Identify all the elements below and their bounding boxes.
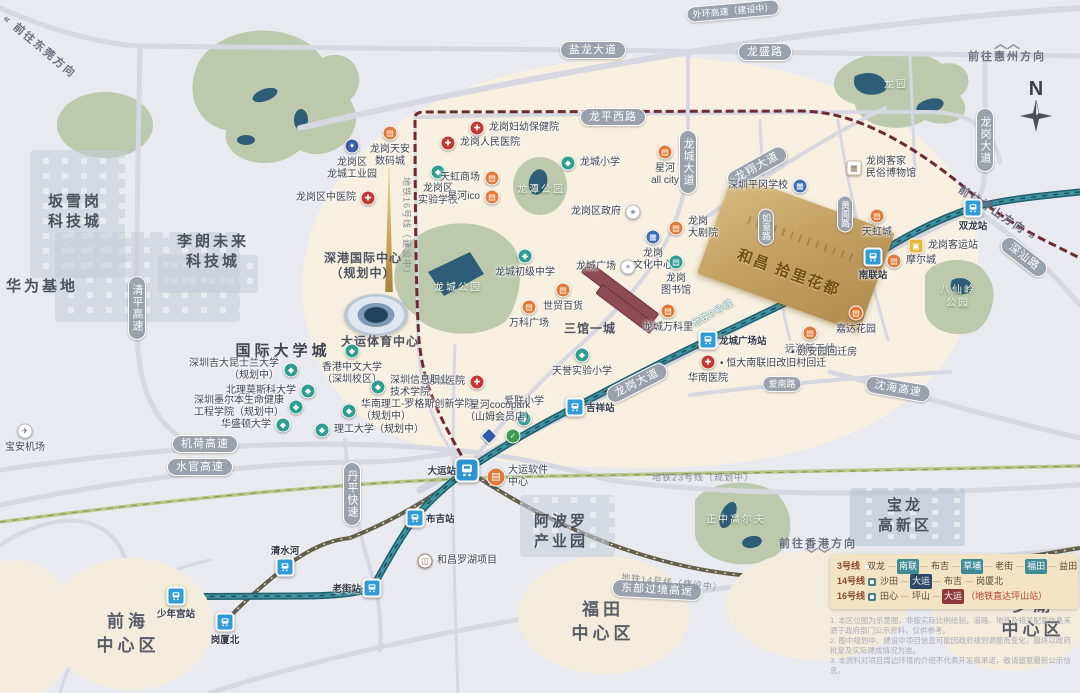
poi-label-line: 龙城广场 (576, 261, 616, 273)
gov-icon: ★ (626, 205, 641, 220)
metro-logo-icon (868, 593, 876, 601)
poi-label-line: 大剧院 (688, 228, 718, 240)
hospital-icon: ✚ (701, 355, 716, 370)
poi-label: 深圳墨尔本生命健康工程学院（规划中） (194, 395, 284, 419)
mall-icon: ▤ (658, 145, 673, 160)
bus-icon: ▣ (909, 239, 924, 254)
legend-row: 3号线双龙—南联—布吉—草埔—老街—福田—益田 (837, 559, 1071, 574)
park-label: 龙潭公园 (517, 184, 565, 197)
poi-label: 龙岗图书馆 (661, 273, 691, 297)
poi-label-line: 图书馆 (661, 285, 691, 297)
area-label-line: 前海 (97, 610, 160, 634)
legend-row: 16号线田心—坪山—大运（地铁直达坪山站） (837, 589, 1071, 604)
poi-label-line: 理工大学（规划中） (334, 424, 424, 436)
road-label: 清平高速 (128, 276, 146, 340)
poi-label: 龙城广场 (576, 261, 616, 273)
metro-station-label: 南联站 (859, 267, 888, 281)
legend-station: 布吉 (942, 574, 964, 589)
mall-lg-icon: ▤ (487, 468, 506, 487)
area-label-line: 中心区 (97, 634, 160, 658)
poi-label-line: 万科广场 (509, 318, 549, 330)
area-label: 三馆一城 (564, 322, 616, 337)
school-icon: ◆ (575, 348, 590, 363)
area-label: 前海中心区 (97, 610, 160, 658)
poi-label-line: 文化中心 (633, 260, 673, 272)
poi-label-line: 星河 (651, 163, 679, 175)
poi-label-line: 华南医院 (688, 373, 728, 385)
poi-label: 和昌罗湖项目 (437, 555, 497, 567)
poi-label-line: 龙城初级中学 (495, 267, 555, 279)
legend-station: 沙田 (878, 574, 900, 589)
area-label-line: 李朗未来 (177, 232, 249, 252)
poi-label-line: 龙岗 (688, 216, 718, 228)
legend-line-name: 16号线 (837, 589, 865, 604)
poi-label-line: all city (651, 175, 679, 187)
mall-icon: ▤ (485, 190, 500, 205)
metro-station-icon (276, 558, 295, 577)
poi-label-line: 工程学院（规划中） (194, 407, 284, 419)
metro-station-label: 岗厦北 (211, 632, 240, 646)
metro-station-label: 龙城广场站 (719, 333, 767, 347)
metro-station-label: 双龙站 (959, 218, 988, 232)
poi-label: 龙岗文化中心 (633, 248, 673, 272)
park-label-line: 龙潭公园 (517, 184, 565, 197)
hospital-icon: ✚ (361, 191, 376, 206)
road-label: 机荷高速 (172, 435, 238, 453)
direction-text: 前往惠州方向 (968, 51, 1046, 63)
poi-label-line: （规划中） (189, 370, 279, 382)
poi-label-line: 星河ico (447, 191, 480, 203)
poi-label-line: （规划中） (361, 411, 474, 423)
area-label-line: 阿波罗 (534, 512, 588, 532)
mall-icon: ▤ (803, 326, 818, 341)
area-label: 宝龙高新区 (878, 496, 932, 536)
poi-label: 天虹城 (862, 227, 892, 239)
area-label: 阿波罗产业园 (534, 512, 588, 552)
road-label: 盐龙大道 (560, 41, 626, 59)
road-label: 丹平快速 (343, 462, 361, 526)
poi-label: 大运软件中心 (508, 465, 548, 489)
poi-label: 万科广场 (509, 318, 549, 330)
road-label: 如意路 (758, 209, 774, 246)
park-label: 八仙岭公园 (940, 284, 976, 310)
poi-label: 天虹商场 (440, 172, 480, 184)
legend-station: 田心 (878, 589, 900, 604)
park-label-line: 龙园 (884, 79, 908, 92)
area-label: 坂雪岗科技城 (48, 192, 102, 232)
mall-icon: ▤ (887, 254, 902, 269)
mall-icon: ▤ (383, 126, 398, 141)
library-icon: ▤ (669, 255, 684, 270)
metro-station-icon (864, 248, 883, 267)
plaza-icon: ✦ (621, 260, 636, 275)
poi-label: 世贸百货 (543, 301, 583, 313)
mall-icon: ▤ (849, 306, 864, 321)
road-label: 爱南路 (762, 376, 801, 392)
road-label: 水官高速 (167, 458, 233, 476)
poi-label-line: 龙城小学 (580, 157, 620, 169)
poi-label-line: 华南理工-罗格斯创新学院 (361, 399, 474, 411)
poi-label: 龙岗妇幼保健院 (489, 122, 559, 134)
poi-label-line: 数码城 (370, 156, 410, 168)
compass-star-icon (1020, 100, 1052, 132)
metro-station-label: 布吉站 (426, 511, 455, 525)
metro-station-label: 清水河 (271, 543, 300, 557)
school-icon: ◆ (315, 423, 330, 438)
legend-station: 布吉 (929, 559, 951, 574)
map-text-line: • 恒大南联旧改旧村回迁 (720, 358, 826, 370)
poi-label-line: 大运软件 (508, 465, 548, 477)
poi-label: 龙城小学 (580, 157, 620, 169)
legend-separator: — (952, 559, 960, 574)
poi-label: 龙岗人民医院 (460, 137, 520, 149)
poi-label-line: 龙岗妇幼保健院 (489, 122, 559, 134)
poi-label-line: 龙岗客运站 (928, 240, 978, 252)
legend-separator: — (920, 559, 928, 574)
poi-label: 嘉达花园 (836, 324, 876, 336)
poi-label-line: 天誉实验小学 (552, 366, 612, 378)
metro-legend: 3号线双龙—南联—布吉—草埔—老街—福田—益田14号线沙田—大运—布吉—岗厦北1… (830, 554, 1078, 609)
poi-label: 龙城万科里 (643, 322, 693, 334)
poi-label-line: 龙岗区政府 (571, 206, 621, 218)
poi-label-line: 天虹商场 (440, 172, 480, 184)
mall-icon: ▤ (485, 171, 500, 186)
school-icon: ◆ (561, 156, 576, 171)
poi-label: 星河all city (651, 163, 679, 187)
metro-station-icon (406, 509, 425, 528)
area-label-line: （规划中） (324, 266, 402, 281)
poi-label-line: 民俗博物馆 (866, 168, 916, 180)
park-label: 正中高尔夫 (706, 514, 766, 527)
poi-label-line: 和昌罗湖项目 (437, 555, 497, 567)
metro-station-label: 吉祥站 (586, 400, 615, 414)
map-text-line: 星河cocopark (465, 400, 535, 412)
area-label-line: 产业园 (534, 532, 588, 552)
area-label-line: 高新区 (878, 516, 932, 536)
legend-station: 草埔 (961, 559, 983, 574)
legend-separator: — (965, 574, 973, 589)
road-label: 龙平西路 (580, 108, 646, 126)
school-icon: ◆ (276, 418, 291, 433)
area-label: 福田中心区 (572, 598, 635, 646)
disclaimer-text: 1. 本区位图为示意图，非按实际比例绘制，道路、地铁及相关配套信息来源于政府部门… (830, 616, 1078, 676)
mall-icon: ▤ (522, 300, 537, 315)
mall-icon: ▤ (870, 209, 885, 224)
legend-separator: — (984, 559, 992, 574)
poi-label: 天誉实验小学 (552, 366, 612, 378)
road-label: 黄阁路 (837, 196, 853, 233)
school-icon: ◆ (371, 380, 386, 395)
park-label-line: 八仙岭 (940, 284, 976, 297)
legend-line-name: 3号线 (837, 559, 860, 574)
metro-logo-icon (868, 578, 876, 586)
park-label: 龙园 (884, 79, 908, 92)
metro-station-label: 大运站 (427, 463, 456, 477)
metro-station-label: 老街站 (332, 581, 361, 595)
map-text-label: • 恒大南联旧改旧村回迁 (720, 358, 826, 370)
poi-label: 龙岗客运站 (928, 240, 978, 252)
poi-label-line: 龙城工业园 (327, 169, 377, 181)
poi-label-line: 世贸百货 (543, 301, 583, 313)
poi-label-line: 中心 (508, 477, 548, 489)
legend-station: 大运 (942, 589, 964, 604)
map-text-label: 星河cocopark（山姆会员店） (465, 400, 535, 424)
park-label-line: 龙城公园 (434, 282, 482, 295)
park-label: 龙城公园 (434, 282, 482, 295)
culture-icon: ▦ (793, 179, 808, 194)
park-label-line: 公园 (940, 297, 976, 310)
area-label-line: 宝龙 (878, 496, 932, 516)
area-label-line: 三馆一城 (564, 322, 616, 337)
poi-label-line: 龙岗天安 (370, 144, 410, 156)
location-map: 和昌 拾里花都 N 盐龙大道龙盛路外环高速（建设中）龙平西路龙城大道龙翔大道龙岗… (0, 0, 1080, 693)
legend-line-name: 14号线 (837, 574, 865, 589)
school-icon: ◆ (518, 249, 533, 264)
compass: N (1029, 78, 1043, 101)
poi-label: 龙岗天安数码城 (370, 144, 410, 168)
legend-separator: — (901, 589, 909, 604)
legend-separator: — (1048, 559, 1056, 574)
legend-suffix: （地铁直达坪山站） (966, 589, 1047, 604)
poi-label-line: 摩尔城 (906, 255, 936, 267)
poi-label-line: 香港中文大学 (322, 362, 382, 374)
poi-label: 宝安机场 (5, 442, 45, 454)
industry-icon: ✦ (345, 139, 360, 154)
metro-line-label: 地铁16号线（建设中） (401, 177, 414, 279)
map-text-label: • 颐安园回迁房 (791, 347, 857, 359)
mall-icon: ▤ (556, 283, 571, 298)
map-text-line: （山姆会员店） (465, 412, 535, 424)
poi-label-line: 深圳平冈学校 (728, 180, 788, 192)
metro-station-icon (566, 398, 585, 417)
metro-line-label: 地铁23号线（规划中） (652, 471, 754, 484)
metro-station-icon (699, 331, 718, 350)
poi-label: 龙岗客家民俗博物馆 (866, 156, 916, 180)
poi-label-line: 技术学院 (390, 387, 450, 399)
school-icon: ◆ (284, 363, 299, 378)
poi-label: 星河ico (447, 191, 480, 203)
poi-label: 龙岗区中医院 (296, 192, 356, 204)
hechang-icon: ◫ (418, 554, 433, 569)
legend-separator: — (933, 574, 941, 589)
poi-label: 华南理工-罗格斯创新学院（规划中） (361, 399, 474, 423)
legend-separator: — (1016, 559, 1024, 574)
disclaimer-line: 1. 本区位图为示意图，非按实际比例绘制，道路、地铁及相关配套信息来源于政府部门… (830, 616, 1078, 636)
poi-label: 摩尔城 (906, 255, 936, 267)
poi-label-line: 天虹城 (862, 227, 892, 239)
school-icon: ◆ (342, 404, 357, 419)
area-label-line: 科技城 (177, 252, 249, 272)
disclaimer-line: 3. 本资料对项目周边环境的介绍不代表开发商承诺，敬请留意最新公示信息。 (830, 656, 1078, 676)
area-label-line: 科技城 (48, 212, 102, 232)
poi-label: 深圳信息职业技术学院 (390, 375, 450, 399)
hospital-icon: ✚ (470, 121, 485, 136)
museum-icon: ▦ (847, 161, 862, 176)
legend-station: 益田 (1057, 559, 1079, 574)
mall-icon: ▤ (669, 221, 684, 236)
poi-label: 深圳平冈学校 (728, 180, 788, 192)
chevron-up-icon: ︿︿ (968, 40, 1046, 48)
poi-label: 龙城初级中学 (495, 267, 555, 279)
legend-station: 福田 (1025, 559, 1047, 574)
poi-label-line: 深圳墨尔本生命健康 (194, 395, 284, 407)
road-label: 龙盛路 (738, 43, 792, 61)
area-label-line: 坂雪岗 (48, 192, 102, 212)
school-icon: ◆ (345, 344, 360, 359)
culture-icon: ▦ (646, 230, 661, 245)
legend-separator: — (933, 589, 941, 604)
legend-row: 14号线沙田—大运—布吉—岗厦北 (837, 574, 1071, 589)
poi-label-line: 深圳信息职业 (390, 375, 450, 387)
metro-station-icon (363, 579, 382, 598)
area-label: 华为基地 (6, 277, 78, 297)
poi-label-line: 龙城万科里 (643, 322, 693, 334)
area-label-line: 华为基地 (6, 277, 78, 297)
poi-label-line: 嘉达花园 (836, 324, 876, 336)
legend-station: 老街 (993, 559, 1015, 574)
legend-station: 南联 (897, 559, 919, 574)
airport-icon: ✈ (18, 424, 33, 439)
poi-label: 龙岗大剧院 (688, 216, 718, 240)
poi-label: 理工大学（规划中） (334, 424, 424, 436)
legend-separator: — (901, 574, 909, 589)
poi-label-line: 宝安机场 (5, 442, 45, 454)
poi-label-line: 华盛顿大学 (221, 419, 271, 431)
direction-label: ︿︿前往惠州方向 (968, 40, 1046, 64)
poi-label-line: 龙岗客家 (866, 156, 916, 168)
poi-label-line: 深圳吉大昆士兰大学 (189, 358, 279, 370)
metro-station-icon (216, 613, 235, 632)
road-label: 龙城大道 (679, 130, 697, 194)
hospital-icon: ✚ (441, 136, 456, 151)
area-label: 李朗未来科技城 (177, 232, 249, 272)
poi-label: 华盛顿大学 (221, 419, 271, 431)
map-text-line: • 颐安园回迁房 (791, 347, 857, 359)
disclaimer-line: 2. 图中规划中、建设中项目信息可能因政府规划调整而变化，最终以政府批复及实际建… (830, 636, 1078, 656)
metro-station-icon (455, 458, 480, 483)
poi-label: 华南医院 (688, 373, 728, 385)
area-label-line: 深港国际中心 (324, 251, 402, 266)
coco-icon: ✓ (506, 429, 521, 444)
poi-label-line: 龙岗区中医院 (296, 192, 356, 204)
metro-station-icon (167, 587, 186, 606)
poi-label-line: 龙岗 (633, 248, 673, 260)
school-icon: ◆ (289, 400, 304, 415)
universiade-stadium (344, 294, 408, 336)
metro-station-icon (964, 199, 983, 218)
poi-label-line: 龙岗人民医院 (460, 137, 520, 149)
legend-station: 大运 (910, 574, 932, 589)
poi-label-line: 龙岗 (661, 273, 691, 285)
poi-label: 深圳吉大昆士兰大学（规划中） (189, 358, 279, 382)
mall-icon: ▤ (661, 304, 676, 319)
legend-station: 坪山 (910, 589, 932, 604)
metro-station-label: 少年宫站 (157, 606, 195, 620)
park-label-line: 正中高尔夫 (706, 514, 766, 527)
compass-north-label: N (1029, 78, 1043, 101)
area-label-line: 中心区 (572, 622, 635, 646)
area-label-line: 福田 (572, 598, 635, 622)
poi-label: 龙岗区政府 (571, 206, 621, 218)
legend-station: 岗厦北 (974, 574, 1005, 589)
hospital-icon: ✚ (470, 375, 485, 390)
school-icon: ◆ (301, 384, 316, 399)
road-label: 龙岗大道 (976, 108, 994, 172)
legend-separator: — (888, 559, 896, 574)
area-label: 深港国际中心（规划中） (324, 251, 402, 281)
